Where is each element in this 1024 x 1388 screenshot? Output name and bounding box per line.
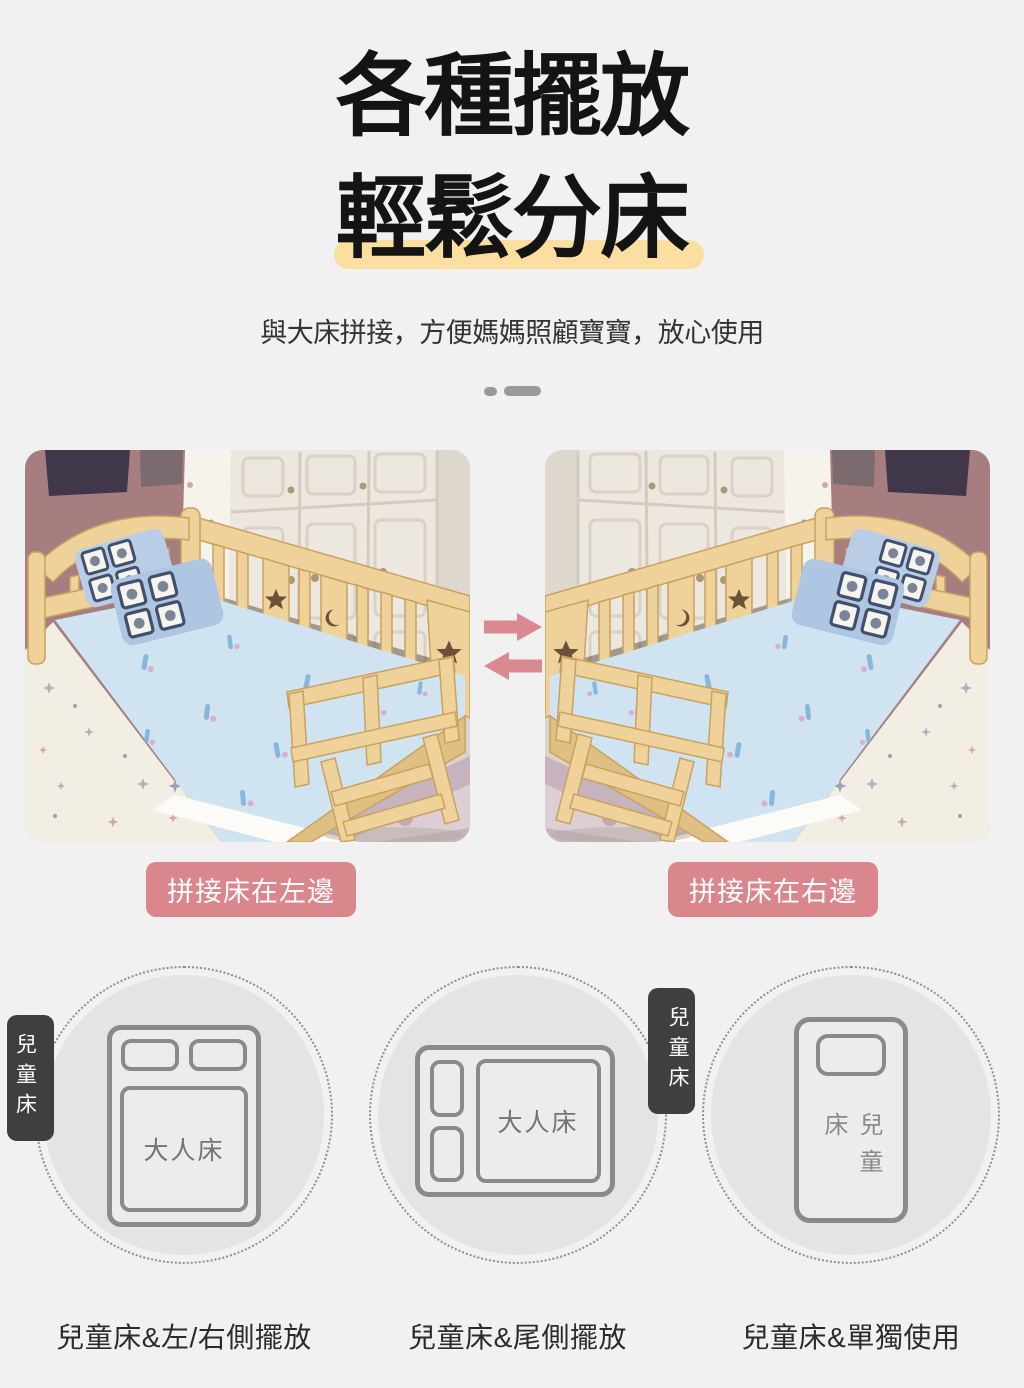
diagram-standalone: 兒童床 xyxy=(702,966,1000,1264)
pillow-shape xyxy=(816,1034,886,1076)
child-bed-badge: 兒童床 xyxy=(7,1015,54,1141)
child-bed-label: 兒童床 xyxy=(816,1112,886,1218)
adult-bed-label: 大人床 xyxy=(476,1059,601,1183)
subtitle: 與大床拼接，方便媽媽照顧寶寶，放心使用 xyxy=(0,311,1024,350)
divider-dot xyxy=(484,387,497,396)
arrow-left-icon xyxy=(484,652,542,680)
diagram-side-placement: 兒童床 大人床 xyxy=(35,966,333,1264)
page-title-line2: 輕鬆分床 xyxy=(336,174,688,264)
adult-bed-label: 大人床 xyxy=(120,1086,248,1212)
swap-arrows xyxy=(484,613,542,680)
child-bed-badge: 兒童床 xyxy=(648,988,695,1114)
pillow-shape xyxy=(430,1126,464,1183)
divider-dash xyxy=(504,386,541,396)
caption-foot-placement: 兒童床&尾側擺放 xyxy=(369,1316,667,1356)
adult-bed-shape: 大人床 xyxy=(107,1025,261,1227)
diagram-foot-placement: 兒童床 大人床 xyxy=(369,966,667,1264)
adult-bed-shape: 大人床 xyxy=(415,1045,615,1197)
page-title-line2-row: 輕鬆分床 xyxy=(0,174,1024,264)
page-title-line1: 各種擺放 xyxy=(0,52,1024,142)
label-splice-right: 拼接床在右邊 xyxy=(668,862,878,917)
photo-bed-attached-left xyxy=(25,450,470,842)
diagram-captions: 兒童床&左/右側擺放 兒童床&尾側擺放 兒童床&單獨使用 xyxy=(35,1316,1000,1356)
arrow-right-icon xyxy=(484,613,542,641)
label-splice-left: 拼接床在左邊 xyxy=(146,862,356,917)
product-promo-page: 各種擺放 輕鬆分床 與大床拼接，方便媽媽照顧寶寶，放心使用 拼接床在左邊 拼接床… xyxy=(0,0,1024,1388)
caption-side-placement: 兒童床&左/右側擺放 xyxy=(35,1316,333,1356)
pillow-shape xyxy=(430,1060,464,1117)
caption-standalone: 兒童床&單獨使用 xyxy=(702,1316,1000,1356)
pillow-shape xyxy=(121,1039,179,1071)
photo-bed-attached-right xyxy=(545,450,990,842)
section-divider xyxy=(0,384,1024,398)
child-bed-shape: 兒童床 xyxy=(794,1017,908,1223)
placement-diagrams: 兒童床 大人床 兒童床 xyxy=(35,966,1000,1264)
pillow-shape xyxy=(189,1039,247,1071)
